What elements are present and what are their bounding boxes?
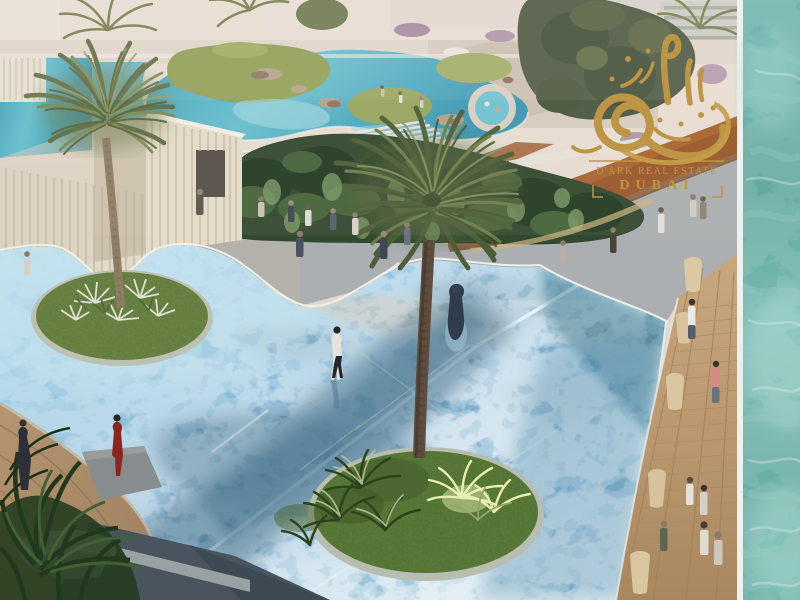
- svg-text:D'ARK REAL ESTATE: D'ARK REAL ESTATE: [596, 166, 718, 177]
- svg-text:DUBAI: DUBAI: [619, 178, 694, 193]
